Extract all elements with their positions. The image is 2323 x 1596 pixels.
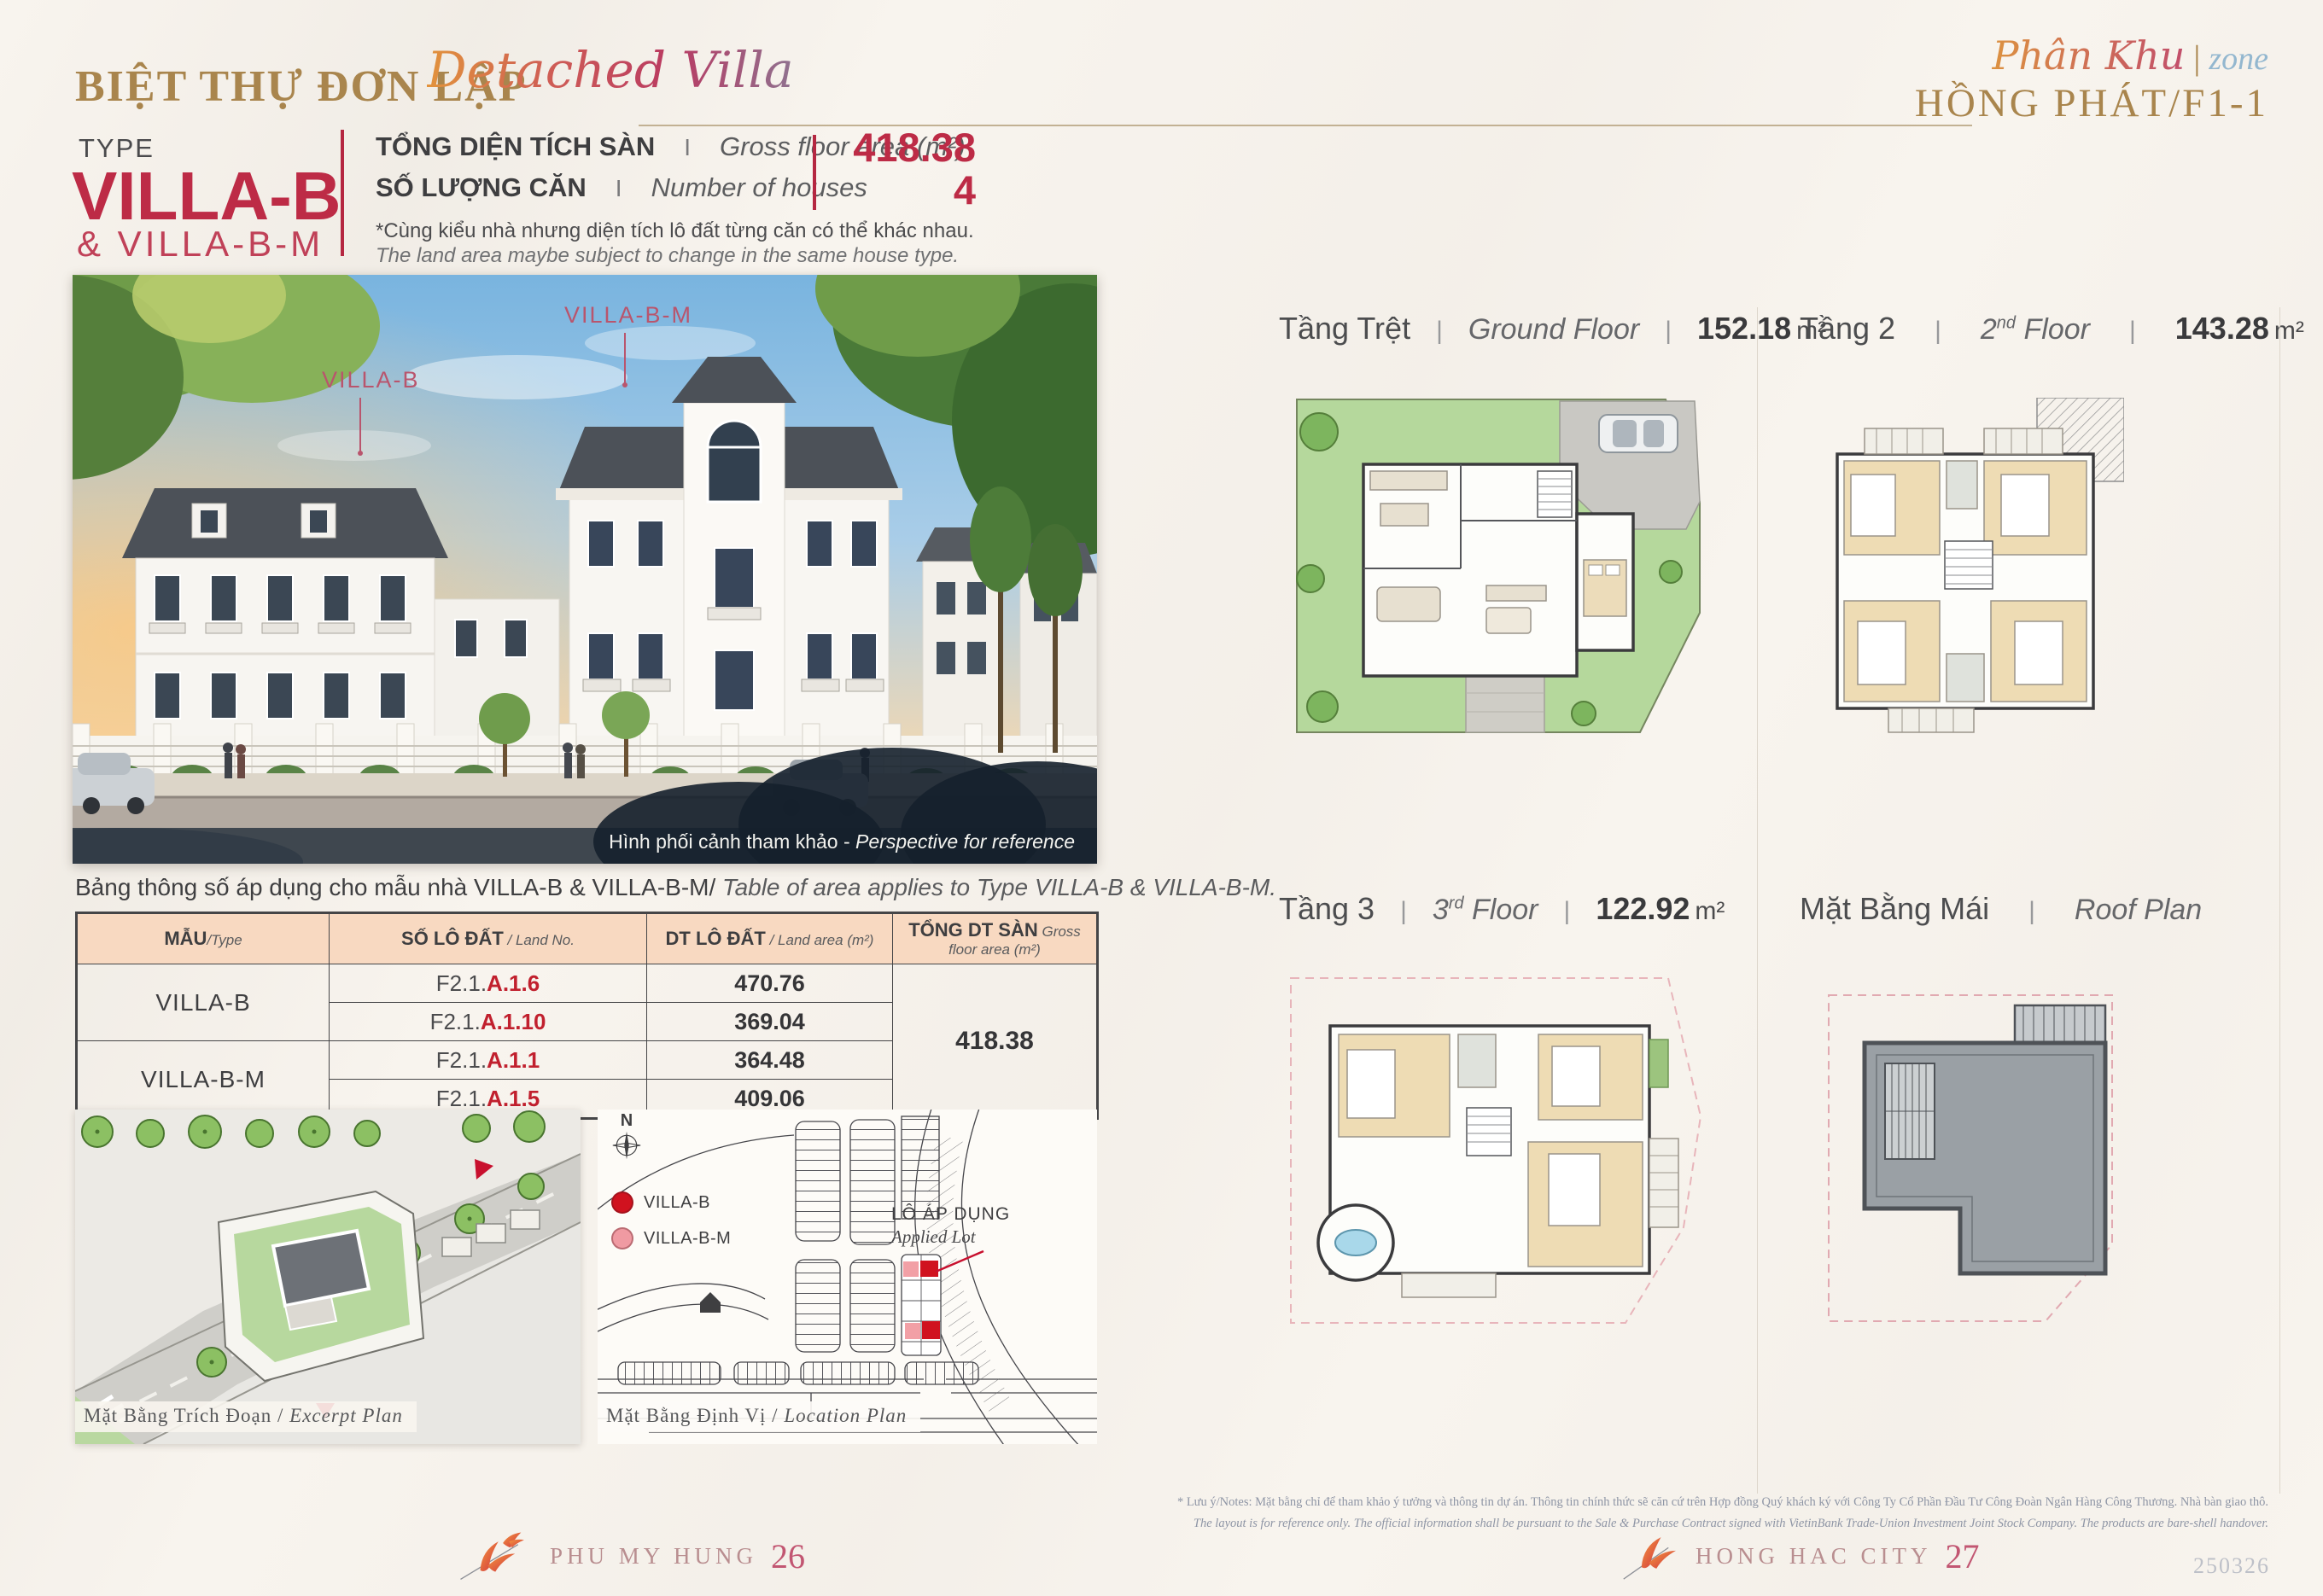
brand-name: PHU MY HUNG — [550, 1543, 757, 1570]
floor-header-third: Tầng 3 | 3rd Floor | 122.92m² — [1279, 891, 1725, 927]
location-plan-drawing — [598, 1110, 1097, 1444]
crimson-divider — [341, 130, 344, 256]
stat-note: *Cùng kiểu nhà nhưng diện tích lô đất từ… — [376, 218, 974, 268]
cell-land-area: 369.04 — [647, 1003, 893, 1041]
quadrant-divider — [2279, 307, 2280, 1494]
lot-prefix: F2.1. — [430, 1009, 481, 1034]
cell-land-area: 364.48 — [647, 1041, 893, 1080]
document-code: 250326 — [2193, 1553, 2270, 1579]
col-header-land-area-en: / Land area (m²) — [766, 932, 874, 948]
separator: | — [1665, 317, 1672, 346]
roof-plan-drawing — [1817, 987, 2124, 1328]
lot-code: A.1.5 — [487, 1086, 540, 1111]
houses-label-vi: SỐ LƯỢNG CĂN — [376, 172, 587, 203]
cell-villa-type: VILLA-B — [77, 964, 330, 1041]
floor-ordinal: nd — [1997, 314, 2016, 333]
floor-header-roof: Mặt Bằng Mái | Roof Plan — [1800, 891, 2202, 927]
location-plan-panel: N VILLA-B VILLA-B-M LÔ ÁP DỤNG Applied L… — [598, 1110, 1097, 1444]
floor-title-en-text: Roof Plan — [2075, 894, 2202, 926]
page-title-english: Detached Villa — [427, 41, 794, 99]
cell-lot-no: F2.1.A.1.10 — [330, 1003, 647, 1041]
render-caption-en: Perspective for reference — [855, 830, 1075, 853]
stat-note-vi: *Cùng kiểu nhà nhưng diện tích lô đất từ… — [376, 218, 974, 243]
excerpt-plan-caption-vi: Mặt Bằng Trích Đoạn / — [84, 1405, 283, 1426]
lot-code: A.1.1 — [487, 1047, 540, 1073]
floor-area-number: 152.18 — [1697, 311, 1791, 346]
area-table: MẪU/Type SỐ LÔ ĐẤT / Land No. DT LÔ ĐẤT … — [75, 912, 1099, 1120]
perspective-render: VILLA-B-M VILLA-B Hình phối cảnh tham kh… — [73, 275, 1097, 864]
floor-header-ground: Tầng Trệt | Ground Floor | 152.18m² — [1279, 311, 1826, 347]
zone-block: Phân Khu|zone HỒNG PHÁT/F1-1 — [1915, 32, 2268, 126]
floor-title-en-text: Ground Floor — [1468, 313, 1639, 346]
lot-code: A.1.6 — [487, 970, 540, 996]
col-header-type-vi: MẪU — [164, 928, 207, 949]
villa-render-illustration — [73, 275, 1097, 864]
label-leader-line — [359, 398, 361, 452]
col-header-land-area: DT LÔ ĐẤT / Land area (m²) — [647, 913, 893, 964]
lot-code: A.1.10 — [481, 1009, 546, 1034]
floor-title-en-text: 3 — [1433, 894, 1449, 926]
excerpt-plan-caption-en: Excerpt Plan — [283, 1405, 402, 1426]
table-caption-en: Table of area applies to Type VILLA-B & … — [715, 874, 1276, 900]
houses-value: 4 — [832, 169, 976, 212]
brand-phu-my-hung: PHU MY HUNG 26 — [458, 1529, 805, 1582]
crane-logo-icon — [1622, 1529, 1682, 1582]
floor-title-en-rest: Floor — [1464, 894, 1538, 926]
lot-prefix: F2.1. — [436, 1047, 487, 1073]
cell-lot-no: F2.1.A.1.6 — [330, 964, 647, 1003]
lot-prefix: F2.1. — [436, 970, 487, 996]
map-legend: VILLA-B VILLA-B-M — [611, 1191, 731, 1263]
location-plan-caption-en: Location Plan — [779, 1405, 908, 1426]
ground-floor-plan-drawing — [1285, 393, 1712, 743]
floor-title-en-rest: Floor — [2016, 313, 2090, 346]
applied-lot-label-vi: LÔ ÁP DỤNG — [891, 1203, 1010, 1226]
cell-lot-no: F2.1.A.1.1 — [330, 1041, 647, 1080]
floor-title-en: 3rd Floor — [1433, 894, 1538, 927]
villa-type-subname: & VILLA-B-M — [77, 224, 324, 265]
zone-name: HỒNG PHÁT/F1-1 — [1915, 80, 2268, 126]
separator: | — [1400, 897, 1407, 926]
legal-note: * Lưu ý/Notes: Mặt bằng chỉ để tham khảo… — [1159, 1492, 2268, 1535]
stat-values: 418.38 4 — [832, 126, 976, 212]
col-header-land-area-vi: DT LÔ ĐẤT — [666, 928, 766, 949]
compass-rose-icon — [611, 1130, 642, 1161]
phoenix-birds-logo-icon — [458, 1529, 536, 1582]
applied-lot-callout: LÔ ÁP DỤNG Applied Lot — [891, 1203, 1010, 1248]
gfa-value: 418.38 — [832, 126, 976, 169]
floor-area-value: 143.28m² — [2175, 311, 2304, 347]
separator: | — [1935, 317, 1941, 346]
excerpt-plan-caption: Mặt Bằng Trích Đoạn / Excerpt Plan — [75, 1401, 417, 1432]
legend-label: VILLA-B-M — [644, 1229, 731, 1249]
floor-title-vi: Tầng Trệt — [1279, 311, 1410, 347]
floor-area-number: 143.28 — [2175, 311, 2269, 346]
stat-separator: I — [684, 134, 691, 161]
crimson-divider-small — [813, 135, 816, 210]
col-header-gfa: TỔNG DT SÀN Gross floor area (m²) — [893, 913, 1098, 964]
floor-area-value: 122.92m² — [1596, 891, 1725, 927]
ground-floor-plan — [1285, 393, 1712, 743]
zone-label-en: zone — [2209, 41, 2268, 77]
col-header-land-no-en: / Land No. — [504, 932, 575, 948]
floor-title-en: 2nd Floor — [1981, 313, 2090, 347]
table-caption: Bảng thông số áp dụng cho mẫu nhà VILLA-… — [75, 874, 1276, 901]
location-plan-caption-vi: Mặt Bằng Định Vị / — [606, 1405, 779, 1426]
roof-plan — [1817, 987, 2124, 1328]
table-header-row: MẪU/Type SỐ LÔ ĐẤT / Land No. DT LÔ ĐẤT … — [77, 913, 1098, 964]
second-floor-plan-drawing — [1817, 398, 2124, 739]
third-floor-plan-drawing — [1282, 971, 1709, 1330]
legal-note-vi: * Lưu ý/Notes: Mặt bằng chỉ để tham khảo… — [1159, 1492, 2268, 1513]
legend-item-villa-b-m: VILLA-B-M — [611, 1227, 731, 1249]
excerpt-plan-drawing — [75, 1110, 581, 1444]
floor-title-vi: Mặt Bằng Mái — [1800, 891, 1989, 927]
legend-dot-red — [611, 1191, 633, 1214]
third-floor-plan — [1282, 971, 1709, 1330]
zone-separator: | — [2193, 38, 2200, 77]
second-floor-plan — [1817, 398, 2124, 739]
compass-north-label: N — [611, 1111, 642, 1130]
legend-dot-pink — [611, 1227, 633, 1249]
zone-label: Phân Khu|zone — [1915, 32, 2268, 79]
floor-ordinal: rd — [1449, 894, 1464, 913]
col-header-type: MẪU/Type — [77, 913, 330, 964]
brochure-page: BIỆT THỰ ĐƠN LẬP Detached Villa Phân Khu… — [0, 0, 2323, 1596]
floor-title-en: Ground Floor — [1468, 313, 1639, 347]
cell-total-gfa: 418.38 — [893, 964, 1098, 1119]
render-caption: Hình phối cảnh tham khảo - Perspective f… — [609, 830, 1075, 853]
col-header-land-no-vi: SỐ LÔ ĐẤT — [401, 928, 504, 949]
legend-label: VILLA-B — [644, 1193, 710, 1213]
gfa-label-vi: TỔNG DIỆN TÍCH SÀN — [376, 131, 655, 162]
floor-title-vi: Tầng 3 — [1279, 891, 1375, 927]
page-number: 27 — [1946, 1536, 1980, 1576]
cell-villa-type: VILLA-B-M — [77, 1041, 330, 1119]
quadrant-divider — [1757, 307, 1758, 1494]
col-header-land-no: SỐ LÔ ĐẤT / Land No. — [330, 913, 647, 964]
page-number: 26 — [771, 1536, 805, 1576]
table-caption-vi: Bảng thông số áp dụng cho mẫu nhà VILLA-… — [75, 874, 715, 900]
floor-title-en-text: 2 — [1981, 313, 1997, 346]
separator: | — [2028, 897, 2035, 926]
lot-prefix: F2.1. — [436, 1086, 487, 1111]
separator: | — [1564, 897, 1571, 926]
separator: | — [2129, 317, 2136, 346]
floor-area-number: 122.92 — [1596, 891, 1690, 926]
zone-label-vi: Phân Khu — [1992, 32, 2185, 79]
stat-note-en: The land area maybe subject to change in… — [376, 243, 974, 268]
render-label-villa-b-m: VILLA-B-M — [564, 302, 692, 329]
table-row: VILLA-B F2.1.A.1.6 470.76 418.38 — [77, 964, 1098, 1003]
floor-area-unit: m² — [1695, 897, 1725, 925]
brand-hong-hac-city: HONG HAC CITY 27 — [1622, 1529, 1980, 1582]
floor-title-vi: Tầng 2 — [1800, 311, 1895, 347]
cell-land-area: 470.76 — [647, 964, 893, 1003]
brand-name: HONG HAC CITY — [1696, 1543, 1932, 1570]
compass: N — [611, 1111, 642, 1165]
applied-lot-label-en: Applied Lot — [891, 1226, 1010, 1248]
render-caption-vi: Hình phối cảnh tham khảo - — [609, 830, 855, 853]
col-header-type-en: /Type — [207, 932, 242, 948]
legend-item-villa-b: VILLA-B — [611, 1191, 731, 1214]
excerpt-plan-panel: Mặt Bằng Trích Đoạn / Excerpt Plan — [75, 1110, 581, 1444]
location-plan-caption: Mặt Bằng Định Vị / Location Plan — [598, 1401, 920, 1432]
separator: | — [1436, 317, 1443, 346]
floor-header-second: Tầng 2 | 2nd Floor | 143.28m² — [1800, 311, 2304, 347]
render-label-villa-b: VILLA-B — [322, 367, 420, 393]
label-leader-line — [624, 333, 626, 384]
col-header-gfa-vi: TỔNG DT SÀN — [908, 919, 1038, 941]
floor-title-en: Roof Plan — [2075, 894, 2202, 927]
stat-separator: I — [616, 175, 622, 202]
